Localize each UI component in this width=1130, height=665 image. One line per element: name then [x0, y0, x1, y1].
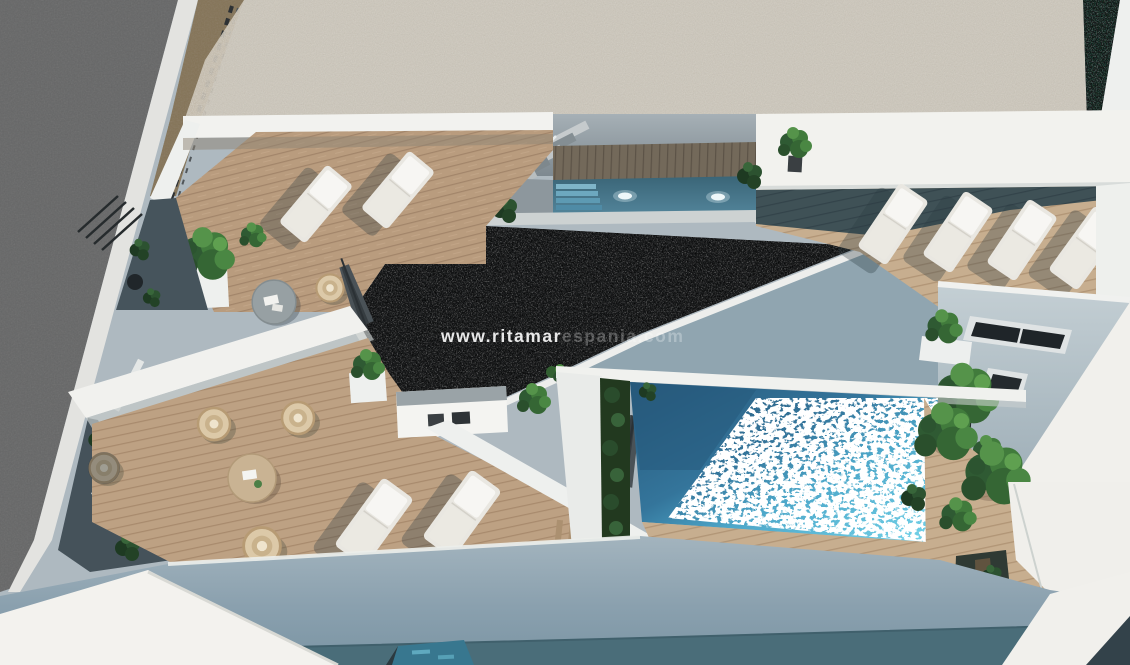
pool-step [556, 191, 598, 196]
pool-step [556, 198, 600, 203]
small-pool [553, 176, 756, 216]
plant-pot [788, 156, 803, 173]
timber-wall-strip [553, 142, 756, 182]
gravel-flat-roof [185, 0, 1087, 122]
watermark-text: www.ritamarespania.com [440, 326, 684, 346]
grill [452, 412, 471, 425]
pool-step [556, 184, 596, 189]
watermark-bold: www.ritamar [440, 326, 562, 346]
parapet-wall [756, 110, 1130, 190]
rendered-image: www.ritamarespania.com [0, 0, 1130, 665]
pool-step [556, 205, 602, 210]
pool-light [618, 193, 632, 200]
pool-light [711, 194, 725, 201]
small-table [127, 274, 143, 290]
aerial-render: www.ritamarespania.com [0, 0, 1130, 665]
watermark-faint: espania.com [562, 326, 685, 346]
side-wall [1096, 183, 1130, 310]
parapet-band [756, 110, 1130, 194]
